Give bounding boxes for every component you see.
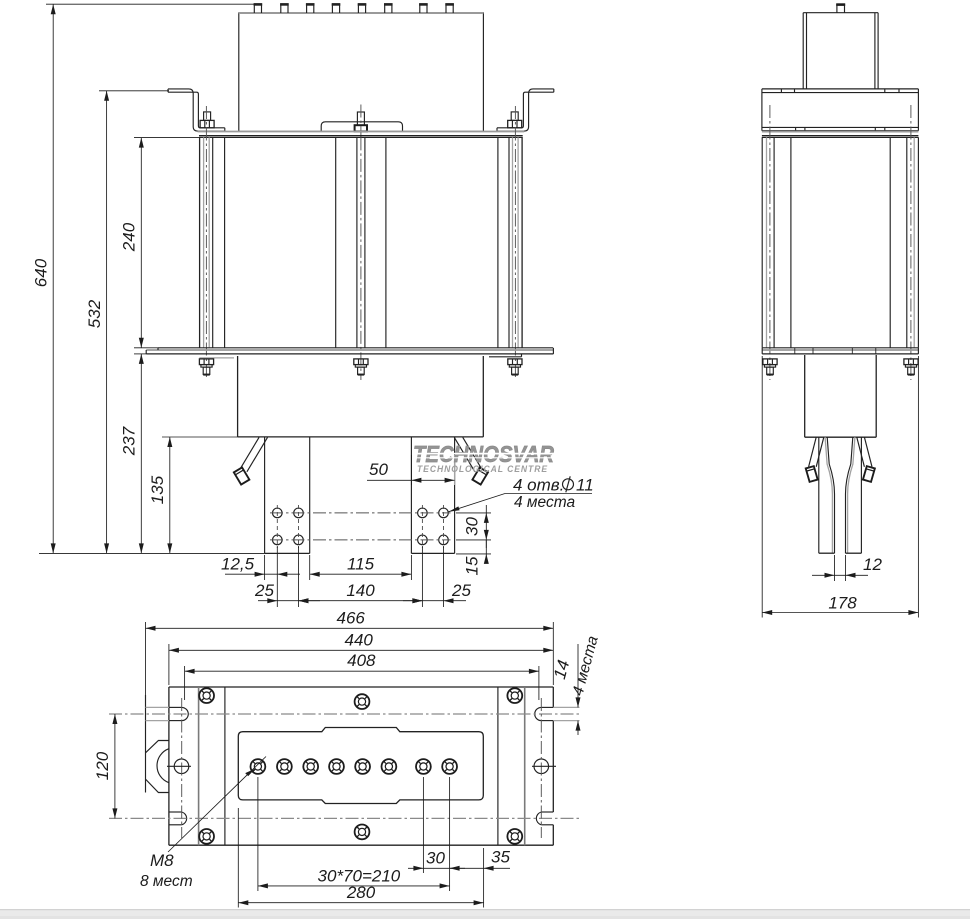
- svg-text:280: 280: [346, 883, 376, 902]
- svg-text:11: 11: [576, 475, 594, 494]
- svg-text:30: 30: [426, 848, 445, 867]
- svg-text:466: 466: [337, 608, 366, 627]
- svg-text:TECHNOLOGICAL CENTRE: TECHNOLOGICAL CENTRE: [417, 464, 548, 474]
- svg-text:240: 240: [120, 222, 139, 252]
- svg-text:4 отв.: 4 отв.: [513, 475, 564, 494]
- svg-text:12,5: 12,5: [221, 555, 255, 574]
- svg-text:12: 12: [863, 555, 882, 574]
- svg-text:115: 115: [347, 555, 375, 574]
- svg-text:135: 135: [148, 475, 167, 504]
- svg-text:408: 408: [347, 651, 376, 670]
- svg-text:50: 50: [369, 460, 388, 479]
- svg-text:178: 178: [828, 594, 857, 613]
- svg-text:15: 15: [463, 556, 482, 575]
- svg-text:532: 532: [85, 299, 104, 328]
- svg-text:25: 25: [451, 581, 471, 600]
- svg-text:640: 640: [32, 258, 51, 287]
- svg-text:М8: М8: [150, 851, 174, 870]
- svg-text:120: 120: [93, 751, 112, 780]
- svg-text:237: 237: [120, 426, 139, 456]
- svg-text:8 мест: 8 мест: [140, 873, 193, 890]
- svg-text:30: 30: [463, 517, 482, 536]
- svg-text:140: 140: [346, 581, 375, 600]
- svg-text:25: 25: [254, 581, 274, 600]
- svg-text:440: 440: [345, 630, 374, 649]
- svg-text:35: 35: [491, 847, 510, 866]
- svg-text:4 места: 4 места: [514, 494, 575, 511]
